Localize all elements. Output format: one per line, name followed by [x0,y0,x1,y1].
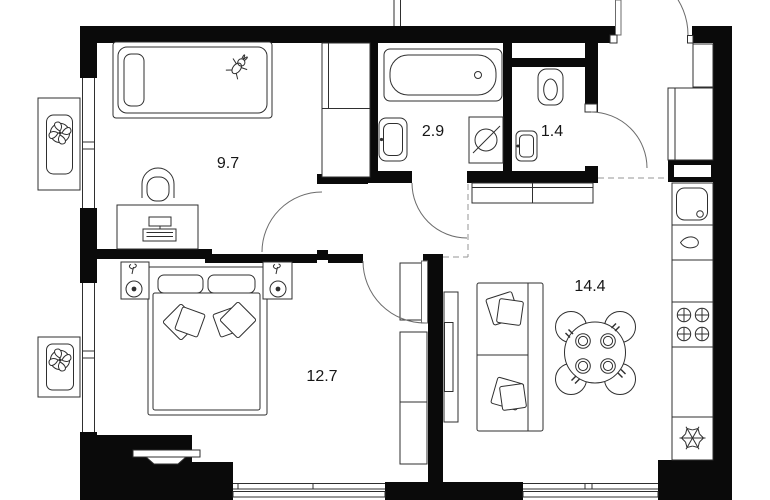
dining-set [556,312,636,395]
bedroom: 12.7 [121,262,427,464]
bed-pillow [208,275,255,293]
wall-bathroom-bottom [368,171,412,183]
wall-bedroom-top-left [97,249,212,259]
door-jamb [585,104,597,112]
vent-duct-inner [674,165,711,177]
hall-wardrobe-icon [472,183,593,203]
wall-bottom-left [80,462,233,500]
nightstand-right [263,262,292,299]
wall-toilet-right [585,43,598,112]
wall-left-upper [80,26,97,78]
nightstand-left [121,262,149,299]
entrance-door-panel [616,0,622,35]
desk-icon [117,205,198,249]
wall-bottom-center [385,482,523,500]
bathroom-door-arc [412,183,467,238]
sofa-pillow [499,383,526,410]
ac-basket-kids-room [38,98,80,190]
wall-toilet-top [512,58,585,67]
bathroom: 2.9 [379,49,503,163]
wall-hall-top [467,171,598,183]
wall-corridor [328,254,363,263]
washing-machine-icon [469,117,503,163]
wall-kidsroom-door-jamb [317,250,328,260]
floor-plan-canvas: 9.7 2.9 1.4 [0,0,770,500]
wall-right [713,26,732,500]
toilet-door [585,104,647,168]
bathtub-icon [384,49,502,101]
room-area-label-bathroom: 2.9 [422,123,444,140]
wall-bottom-right-corner [658,460,732,500]
ac-basket-bedroom [38,337,80,397]
toilet-door-arc [591,112,647,168]
window-living-room [523,484,658,498]
door-jamb [610,35,617,43]
wall-bedroom-top [205,254,317,263]
entrance-door-arc [621,0,688,35]
room-area-label-kitchen-living-room: 14.4 [574,278,605,295]
room-area-label-kids-room: 9.7 [217,155,239,172]
kids-room-door-arc [262,192,322,252]
room-area-label-toilet: 1.4 [541,123,563,140]
window-kids-room [83,78,95,208]
ac-units [38,98,80,397]
entrance-door [610,0,693,43]
double-bed-icon [148,267,267,415]
toilet-sink-icon [516,131,537,161]
door-jamb [688,36,694,44]
kids-room: 9.7 [113,42,370,249]
wardrobe-icon [322,43,370,177]
desk-chair-icon [142,168,174,201]
sofa-icon [477,283,543,431]
bedroom-door-panel [422,261,428,323]
bathroom-sink-icon [379,118,407,161]
wall-bedroom-living [428,254,443,482]
kitchen-living-room: 14.4 [444,183,713,460]
window-bedroom-left [83,283,95,432]
bed-pillow [158,275,203,293]
living-tv-icon [444,292,458,422]
dining-table-icon [565,322,626,383]
wall-left-middle [80,208,97,283]
single-bed-icon [113,42,272,118]
wall-left-lower [80,432,97,500]
wall-top [80,26,615,43]
hall-cabinet-icon [668,44,713,160]
toilet-room: 1.4 [516,69,563,161]
window-bedroom-bottom [233,484,385,498]
wall-bathroom-toilet [503,43,512,183]
kitchen-counter [672,183,713,460]
riser-lines [394,0,401,26]
room-area-label-bedroom: 12.7 [306,368,337,385]
sofa-pillow [496,298,523,325]
floor-plan: 9.7 2.9 1.4 [0,0,770,500]
hall-shelf [693,44,713,87]
toilet-icon [538,69,563,105]
